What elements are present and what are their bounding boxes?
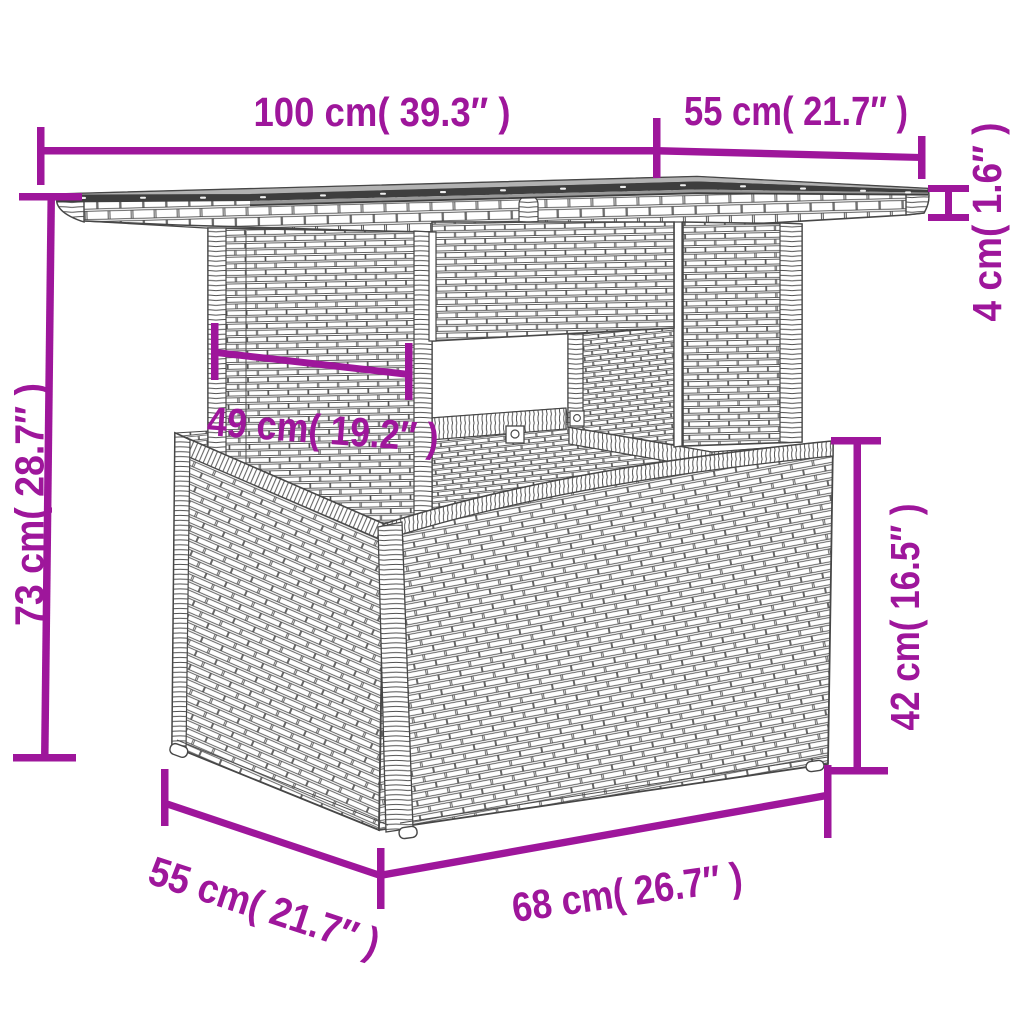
svg-text:4 cm( 1.6″ ): 4 cm( 1.6″ ) [964,123,1010,322]
svg-text:100 cm( 39.3″ ): 100 cm( 39.3″ ) [254,89,511,135]
svg-text:42 cm( 16.5″ ): 42 cm( 16.5″ ) [882,504,928,731]
svg-text:55 cm( 21.7″ ): 55 cm( 21.7″ ) [684,88,908,134]
svg-text:73 cm( 28.7″ ): 73 cm( 28.7″ ) [7,383,53,626]
